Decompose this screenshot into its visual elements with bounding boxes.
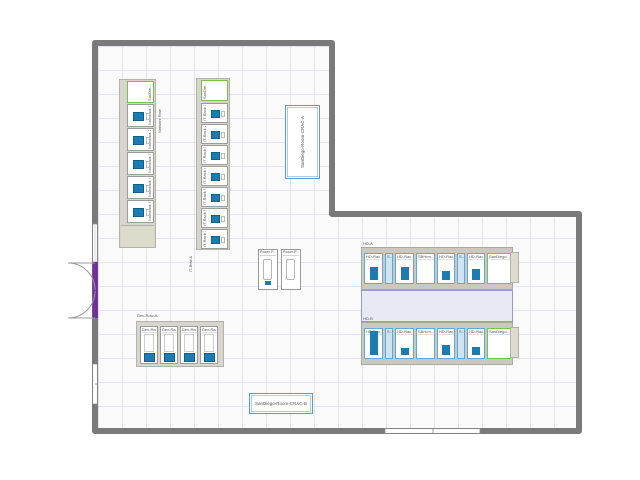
rack-hd[interactable]: HD-Rac...	[395, 253, 414, 284]
rack-label: IT-Rack 4	[202, 168, 208, 184]
crac-b-label: SanDiego-Room-CRAC-B	[250, 394, 312, 413]
rack-label: HD-Rac...	[439, 329, 454, 335]
rack-hd[interactable]: HD-Rac...	[364, 328, 383, 359]
rack-hd[interactable]: HD-Rac...	[395, 328, 414, 359]
power-panel-2[interactable]: Power-P...	[281, 249, 301, 290]
rack-network[interactable]: Net-Rack 1	[127, 104, 154, 127]
rack-label: IT-Rack 7	[202, 231, 208, 247]
rack-dev[interactable]: Dev-Ra...	[160, 326, 178, 364]
capacity-bar	[472, 269, 480, 280]
rack-label: Dev-Ra...	[202, 327, 217, 333]
rack-hd[interactable]: HD-Rac...	[467, 328, 485, 359]
rack-handle	[221, 195, 225, 201]
device-icon	[133, 184, 144, 193]
device-icon	[144, 353, 155, 362]
rack-label: Dev-Ra...	[162, 327, 177, 333]
rack-frame	[184, 334, 194, 352]
device-icon	[211, 215, 220, 223]
rack-label: HD-Rac...	[397, 254, 413, 260]
capacity-bar	[442, 271, 450, 280]
rack-label: IT-Rack 6	[202, 210, 208, 226]
device-icon	[133, 208, 144, 217]
rack-label: S...	[459, 329, 464, 334]
crac-unit-a[interactable]: SanDiego-Room-CRAC-A	[285, 105, 320, 179]
rack-it[interactable]: IT-Rack 2	[201, 124, 228, 144]
rack-frame	[144, 334, 154, 352]
capacity-bar	[472, 347, 480, 355]
rack-label: S...	[459, 254, 464, 259]
rack-label: Dev-Ra...	[182, 327, 197, 333]
rack-label: HD-Rac...	[366, 254, 382, 260]
rack-hd[interactable]: HD-Rac...	[364, 253, 383, 284]
dev-row-container: Dev-Ra...Dev-Ra...Dev-Ra...Dev-Ra...	[136, 321, 224, 367]
rack-chassis[interactable]: SBHrm...	[416, 253, 435, 284]
panel-breaker	[265, 281, 271, 285]
rack-pdu-green[interactable]: SanDie...	[201, 80, 228, 101]
crac-a-label: SanDiego-Room-CRAC-A	[300, 116, 305, 168]
rack-green[interactable]: SanDiego...	[487, 253, 511, 284]
rack-label: S...	[387, 329, 392, 334]
it-row-container: SanDie...IT-Rack 1IT-Rack 2IT-Rack 3IT-R…	[196, 78, 230, 250]
device-icon	[211, 194, 220, 202]
rack-it[interactable]: IT-Rack 3	[201, 145, 228, 165]
device-icon	[133, 160, 144, 169]
rack-label: Dev-Ra...	[142, 327, 157, 333]
rack-network[interactable]: Net-Rack 5	[127, 200, 154, 223]
rack-label: HD-Rac...	[469, 254, 484, 260]
rack-label: HD-Rac...	[397, 329, 413, 335]
device-icon	[164, 353, 175, 362]
device-icon	[133, 136, 144, 145]
rack-label: SanDie...	[147, 83, 153, 101]
rack-handle	[146, 113, 150, 120]
rack-network[interactable]: Net-Rack 3	[127, 152, 154, 175]
rack-network[interactable]: Net-Rack 4	[127, 176, 154, 199]
rack-label: SanDiego...	[489, 254, 510, 260]
rack-it[interactable]: IT-Rack 6	[201, 208, 228, 228]
rack-label: SBHrm...	[418, 254, 434, 260]
rack-it[interactable]: IT-Rack 7	[201, 229, 228, 249]
capacity-bar	[401, 348, 409, 355]
rack-narrow[interactable]: S...	[457, 253, 465, 284]
rack-it[interactable]: IT-Rack 4	[201, 166, 228, 186]
power-panel-1-label: Power-P...	[260, 250, 276, 256]
floorplan-canvas: SanDie...Net-Rack 1Net-Rack 2Net-Rack 3N…	[0, 0, 640, 480]
rack-label: IT-Rack 2	[202, 126, 208, 142]
row-label-hd-b: HD-B	[363, 316, 393, 322]
rack-label: IT-Rack 1	[202, 105, 208, 121]
device-icon	[133, 112, 144, 121]
hd-b-container: HD-Rac...S...HD-Rac...SBHrm...HD-Rac...S…	[361, 322, 513, 365]
row-endcap	[510, 252, 519, 283]
rack-label: HD-Rac...	[469, 329, 484, 335]
hd-a-container: HD-Rac...S...HD-Rac...SBHrm...HD-Rac...S…	[361, 247, 513, 290]
panel-slot	[263, 259, 272, 280]
rack-green[interactable]: SanDiego...	[487, 328, 511, 359]
rack-label: SBHrm...	[418, 329, 434, 335]
rack-handle	[221, 174, 225, 180]
rack-label: IT-Rack 3	[202, 147, 208, 163]
rack-narrow[interactable]: S...	[385, 328, 393, 359]
rack-network[interactable]: Net-Rack 2	[127, 128, 154, 151]
device-icon	[211, 152, 220, 160]
rack-frame	[204, 334, 214, 352]
power-panel-2-label: Power-P...	[283, 250, 299, 256]
rack-label: HD-Rac...	[439, 254, 454, 260]
rack-dev[interactable]: Dev-Ra...	[200, 326, 218, 364]
rack-narrow[interactable]: S...	[457, 328, 465, 359]
rack-hd[interactable]: HD-Rac...	[437, 328, 455, 359]
rack-handle	[146, 209, 150, 216]
rack-narrow[interactable]: S...	[385, 253, 393, 284]
power-panel-1[interactable]: Power-P...	[258, 249, 278, 290]
row-label-network: Network Row	[157, 81, 165, 133]
capacity-bar	[370, 331, 378, 355]
rack-it[interactable]: IT-Rack 1	[201, 103, 228, 123]
rack-hd[interactable]: HD-Rac...	[437, 253, 455, 284]
network-row-container: SanDie...Net-Rack 1Net-Rack 2Net-Rack 3N…	[119, 79, 156, 248]
rack-pdu-green[interactable]: SanDie...	[127, 81, 154, 103]
row-label-hd-a: HD-A	[363, 241, 393, 247]
rack-handle	[221, 132, 225, 138]
device-icon	[184, 353, 195, 362]
rack-handle	[221, 237, 225, 243]
device-icon	[204, 353, 215, 362]
panel-slot	[286, 259, 295, 280]
rack-dev[interactable]: Dev-Ra...	[180, 326, 198, 364]
rack-chassis[interactable]: SBHrm...	[416, 328, 435, 359]
device-icon	[211, 110, 220, 118]
capacity-bar	[442, 345, 450, 355]
row-label-dev: Dev-Row-A	[137, 313, 179, 319]
device-icon	[211, 131, 220, 139]
device-icon	[211, 236, 220, 244]
row-endcap	[121, 225, 154, 247]
capacity-bar	[370, 267, 378, 280]
rack-dev[interactable]: Dev-Ra...	[140, 326, 158, 364]
row-label-it: IT-Row A	[188, 232, 196, 272]
rack-handle	[146, 185, 150, 192]
rack-it[interactable]: IT-Rack 5	[201, 187, 228, 207]
rack-rows-layer: SanDie...Net-Rack 1Net-Rack 2Net-Rack 3N…	[0, 0, 640, 480]
rack-handle	[146, 161, 150, 168]
rack-handle	[221, 111, 225, 117]
rack-label: SanDiego...	[489, 329, 510, 335]
crac-a-label-wrap: SanDiego-Room-CRAC-A	[286, 106, 319, 178]
rack-hd[interactable]: HD-Rac...	[467, 253, 485, 284]
rack-frame	[164, 334, 174, 352]
rack-handle	[221, 153, 225, 159]
rack-handle	[221, 216, 225, 222]
rack-handle	[146, 137, 150, 144]
capacity-bar	[401, 267, 409, 280]
device-icon	[211, 173, 220, 181]
crac-unit-b[interactable]: SanDiego-Room-CRAC-B	[249, 393, 313, 414]
rack-label: S...	[387, 254, 392, 259]
rack-label: SanDie...	[202, 82, 208, 99]
rack-label: IT-Rack 5	[202, 189, 208, 205]
row-endcap	[510, 327, 519, 358]
